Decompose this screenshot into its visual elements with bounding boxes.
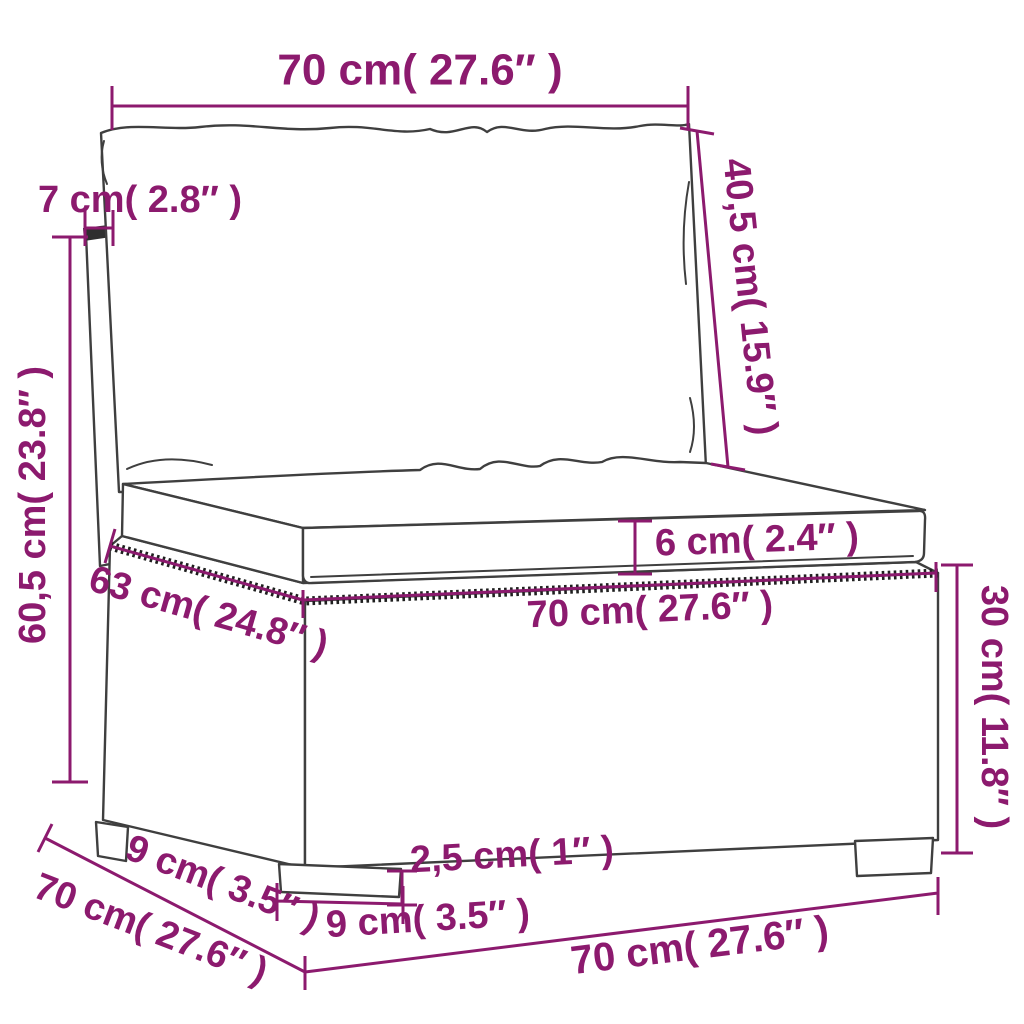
dim-label-bottom-base-width: 70 cm( 27.6″ ) — [568, 908, 831, 983]
dim-label-back-post-width: 7 cm( 2.8″ ) — [38, 179, 242, 221]
diagram-canvas: 70 cm( 27.6″ ) 40,5 cm( 15.9″ ) 7 cm( 2.… — [0, 0, 1024, 1024]
dim-label-seat-cushion-thickness: 6 cm( 2.4″ ) — [654, 515, 859, 564]
dim-label-top-back-width: 70 cm( 27.6″ ) — [277, 46, 562, 95]
rattan-base — [103, 546, 938, 868]
sofa-dimension-diagram: 70 cm( 27.6″ ) 40,5 cm( 15.9″ ) 7 cm( 2.… — [0, 0, 1024, 1024]
dim-label-total-height: 60,5 cm( 23.8″ ) — [12, 366, 54, 644]
dim-label-back-cushion-height: 40,5 cm( 15.9″ ) — [715, 156, 786, 437]
foot-right — [855, 838, 933, 876]
dim-top-back-width: 70 cm( 27.6″ ) — [112, 46, 688, 130]
dim-label-base-height: 30 cm( 11.8″ ) — [973, 585, 1015, 829]
dim-label-foot-depth: 9 cm( 3.5″ ) — [325, 892, 531, 946]
dim-total-height: 60,5 cm( 23.8″ ) — [12, 237, 88, 782]
dim-base-height: 30 cm( 11.8″ ) — [941, 565, 1015, 853]
